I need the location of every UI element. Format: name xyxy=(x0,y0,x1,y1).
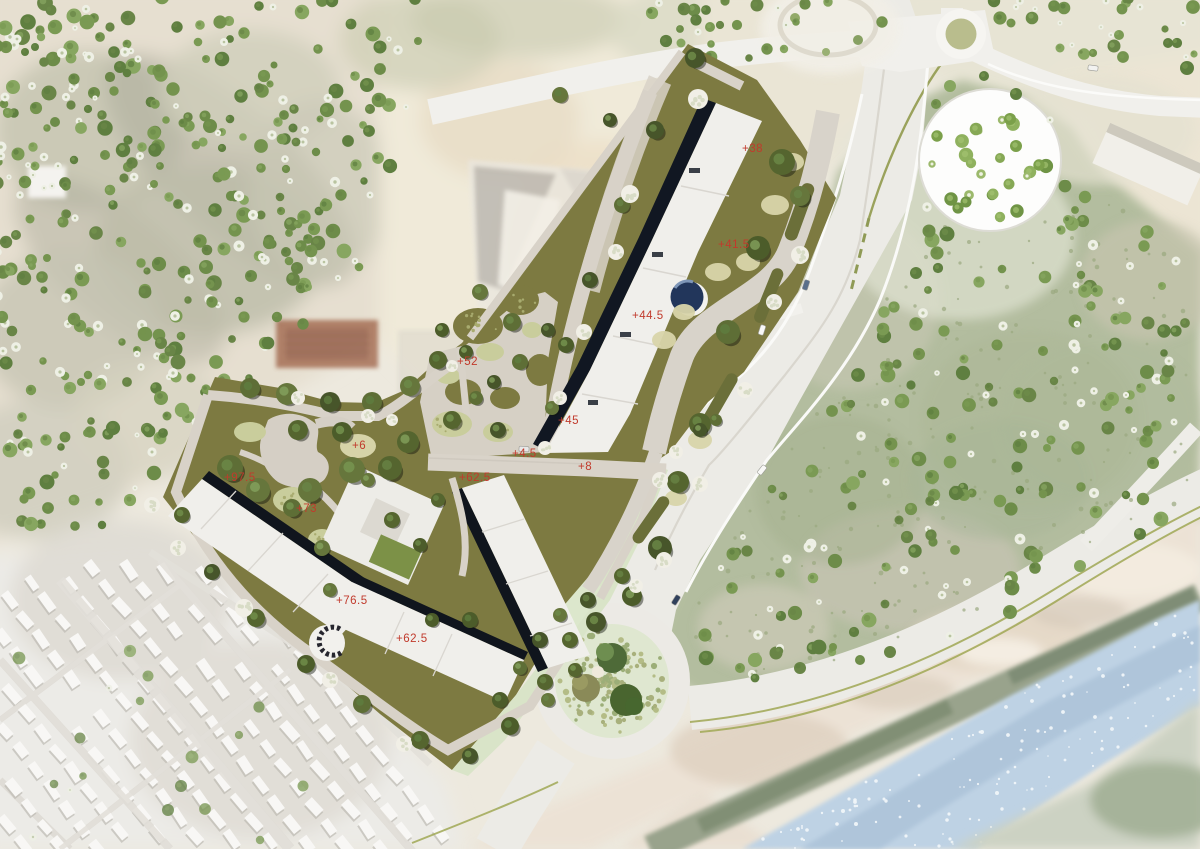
svg-text:+76.5: +76.5 xyxy=(336,595,368,607)
svg-text:+44.5: +44.5 xyxy=(632,310,664,322)
svg-text:+52: +52 xyxy=(457,356,478,368)
svg-text:+97.5: +97.5 xyxy=(224,472,256,484)
svg-text:+62.5: +62.5 xyxy=(396,633,428,645)
svg-text:+41.5: +41.5 xyxy=(718,239,750,251)
svg-text:+45: +45 xyxy=(558,415,579,427)
svg-text:+38: +38 xyxy=(742,143,763,155)
svg-text:+6: +6 xyxy=(352,440,366,452)
svg-text:+4.5: +4.5 xyxy=(512,448,537,460)
svg-text:+73: +73 xyxy=(296,503,317,515)
svg-text:+8: +8 xyxy=(578,461,592,473)
svg-text:+62.5: +62.5 xyxy=(459,472,491,484)
